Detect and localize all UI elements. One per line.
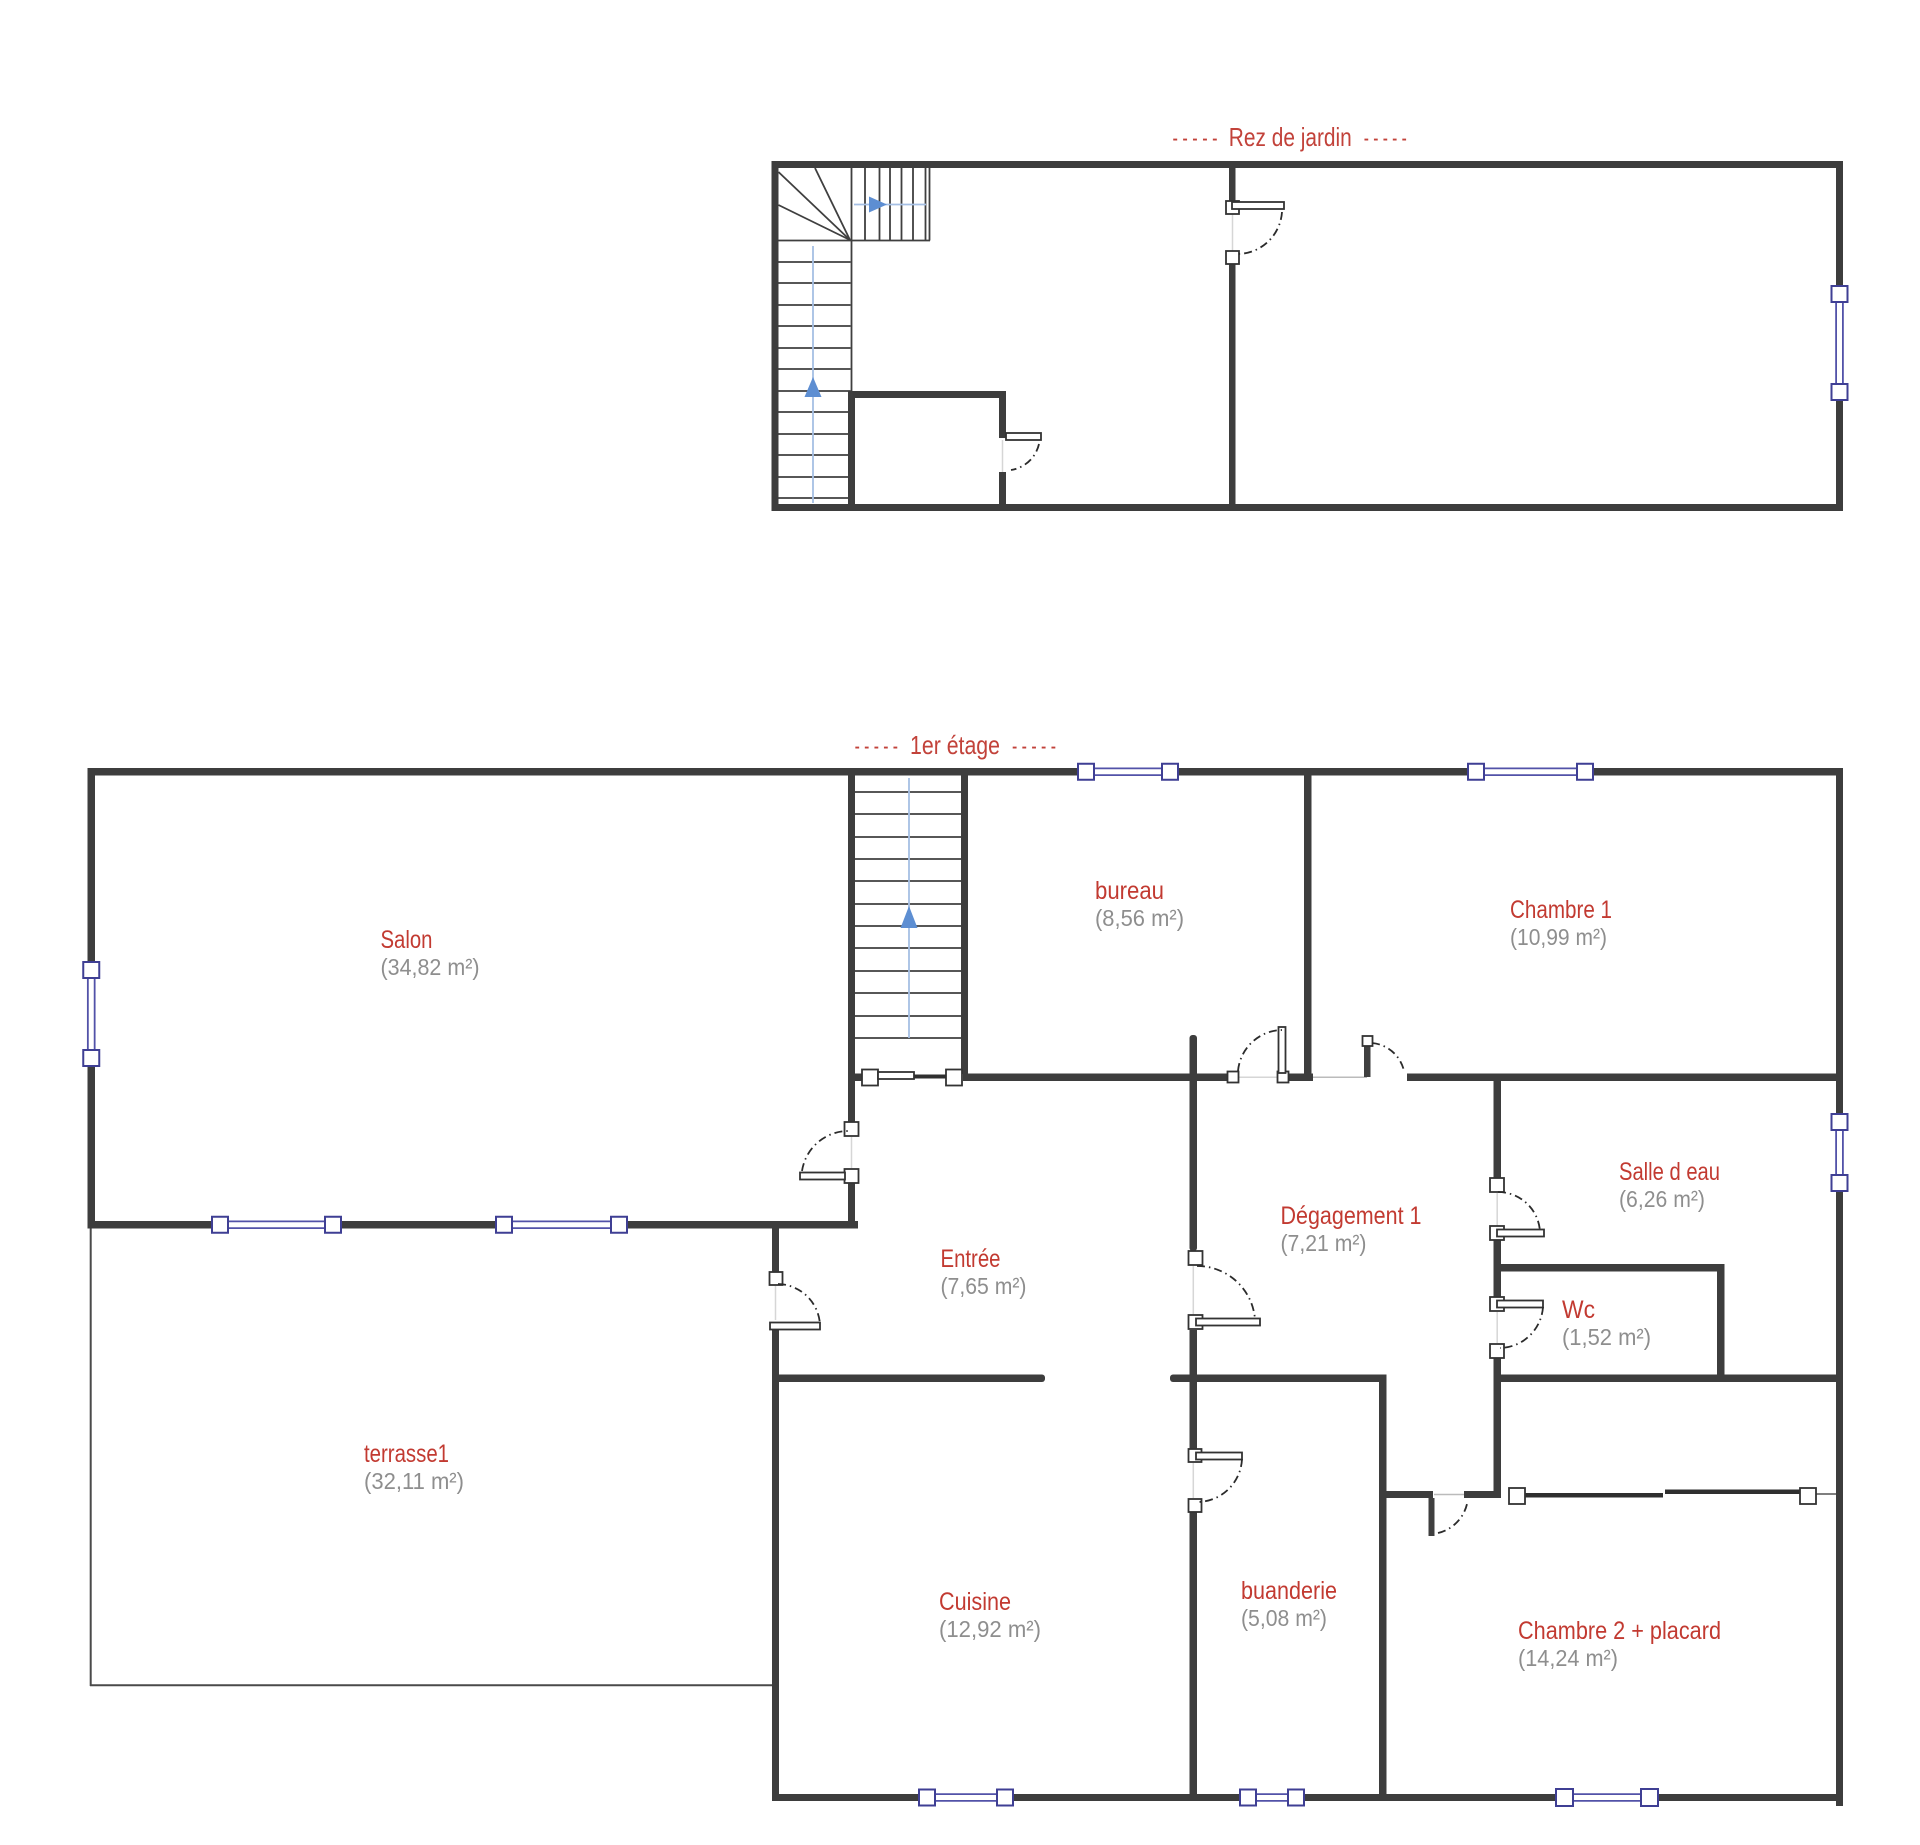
svg-text:Chambre 1: Chambre 1 [1510,896,1612,924]
svg-text:- - - - -: - - - - - [1364,125,1407,152]
svg-text:Rez de jardin: Rez de jardin [1229,122,1352,152]
svg-text:- - - - -: - - - - - [1012,733,1056,760]
svg-text:- - - - -: - - - - - [1173,125,1218,152]
svg-text:(10,99 m²): (10,99 m²) [1510,924,1607,950]
svg-text:Entrée: Entrée [941,1245,1001,1273]
svg-text:Dégagement 1: Dégagement 1 [1281,1202,1422,1230]
svg-text:Salon: Salon [381,926,433,954]
svg-text:(8,56 m²): (8,56 m²) [1095,905,1184,931]
svg-text:Cuisine: Cuisine [939,1588,1011,1616]
svg-text:(32,11 m²): (32,11 m²) [364,1468,464,1494]
svg-text:(6,26 m²): (6,26 m²) [1619,1186,1705,1212]
svg-text:terrasse1: terrasse1 [364,1440,449,1468]
svg-text:(7,65 m²): (7,65 m²) [941,1273,1027,1299]
svg-text:- - - - -: - - - - - [855,733,898,760]
svg-text:Wc: Wc [1562,1296,1595,1324]
svg-text:(7,21 m²): (7,21 m²) [1281,1230,1367,1256]
svg-text:Salle d eau: Salle d eau [1619,1158,1720,1186]
svg-text:Chambre 2 + placard: Chambre 2 + placard [1518,1617,1721,1645]
svg-text:(14,24 m²): (14,24 m²) [1518,1645,1618,1671]
svg-text:1er étage: 1er étage [910,730,1000,760]
svg-text:bureau: bureau [1095,877,1164,905]
svg-text:buanderie: buanderie [1241,1577,1337,1605]
svg-text:(5,08 m²): (5,08 m²) [1241,1605,1327,1631]
svg-text:(1,52 m²): (1,52 m²) [1562,1324,1651,1350]
svg-text:(12,92 m²): (12,92 m²) [939,1616,1041,1642]
svg-text:(34,82 m²): (34,82 m²) [381,954,480,980]
